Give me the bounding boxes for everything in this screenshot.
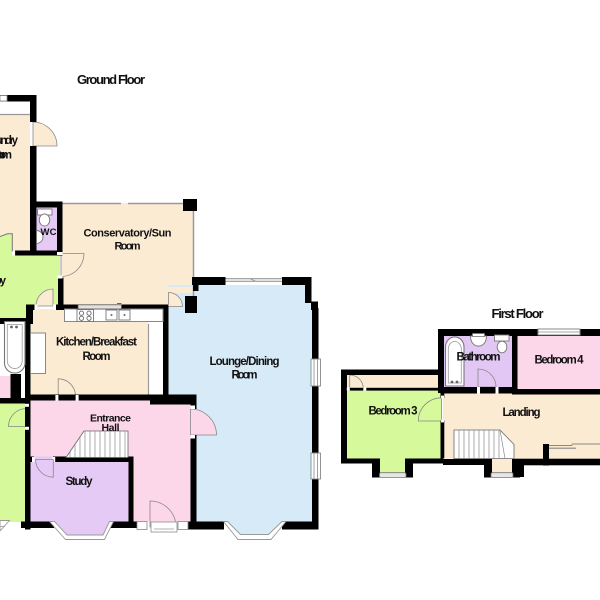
svg-text:Conservatory/Sun: Conservatory/Sun: [84, 228, 172, 240]
svg-text:WC: WC: [41, 227, 57, 238]
svg-text:Study: Study: [66, 476, 94, 488]
svg-text:Room: Room: [232, 370, 258, 382]
svg-text:Bedroom 3: Bedroom 3: [369, 406, 418, 418]
svg-text:Bathroom: Bathroom: [457, 352, 501, 364]
svg-text:Hall: Hall: [102, 422, 120, 434]
svg-text:Kitchen/Breakfast: Kitchen/Breakfast: [56, 337, 137, 349]
svg-text:Landing: Landing: [503, 407, 541, 419]
svg-text:Bedroom 4: Bedroom 4: [535, 355, 585, 367]
svg-text:Room: Room: [83, 351, 111, 363]
svg-text:Lounge/Dining: Lounge/Dining: [210, 356, 280, 368]
svg-text:Ground Floor: Ground Floor: [77, 72, 145, 87]
svg-text:First Floor: First Floor: [492, 306, 544, 321]
svg-text:Room: Room: [0, 150, 12, 162]
svg-text:Room: Room: [115, 241, 141, 253]
svg-text:Lobby: Lobby: [0, 275, 7, 287]
svg-text:Laundry: Laundry: [0, 135, 19, 147]
